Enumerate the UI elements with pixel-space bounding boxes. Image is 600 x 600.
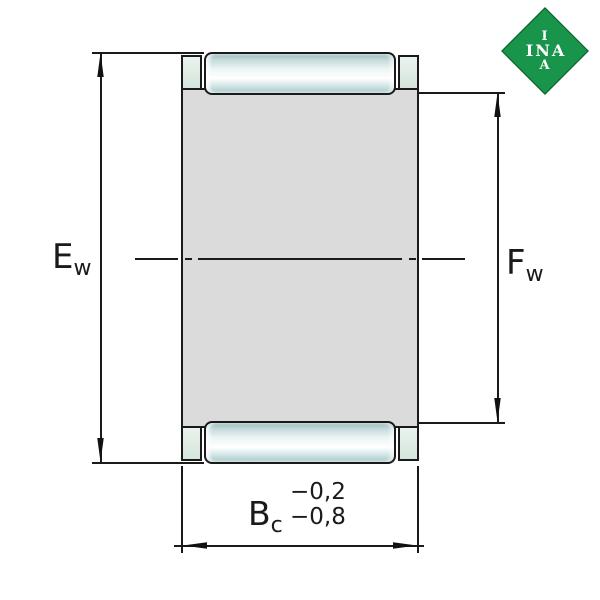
fw-dimension-line — [497, 93, 499, 422]
ew-label-main: E — [52, 237, 73, 277]
arrow-down-icon — [493, 398, 502, 422]
arrow-up-icon — [96, 53, 105, 77]
fw-label: Fw — [506, 246, 544, 286]
bc-dimension-line — [174, 545, 424, 547]
drawing-canvas: Ew Fw Bc −0,2 −0,8 I INA A — [0, 0, 600, 600]
ew-dimension-line — [100, 53, 102, 462]
needle-roller-bottom — [204, 421, 396, 464]
bc-tolerance: −0,2 −0,8 — [290, 480, 346, 530]
cage-tab-top-left — [181, 55, 202, 90]
bc-extension-line-right — [417, 466, 419, 553]
bc-tolerance-upper: −0,2 — [290, 480, 346, 505]
arrow-up-icon — [493, 93, 502, 117]
fw-extension-line-top — [419, 92, 505, 94]
center-line — [422, 258, 465, 260]
bc-label-main: B — [248, 494, 271, 533]
ina-logo-line2: INA — [524, 43, 567, 59]
ew-extension-line-top — [92, 52, 204, 54]
ina-logo-text: I INA A — [515, 21, 575, 81]
fw-label-main: F — [506, 243, 526, 283]
ina-logo-line3: A — [539, 59, 550, 72]
center-line — [185, 258, 192, 260]
center-line — [198, 258, 402, 260]
arrow-down-icon — [96, 438, 105, 462]
center-line — [409, 258, 416, 260]
bc-label: Bc — [248, 497, 283, 537]
ew-label-sub: w — [73, 256, 91, 281]
bc-label-sub: c — [271, 513, 283, 538]
ew-label: Ew — [52, 240, 91, 280]
bc-tolerance-lower: −0,8 — [290, 505, 346, 530]
fw-label-sub: w — [526, 262, 544, 287]
ew-extension-line-bottom — [92, 462, 204, 464]
bc-extension-line-left — [181, 466, 183, 553]
cage-tab-bottom-right — [398, 426, 419, 461]
center-line — [135, 258, 178, 260]
arrow-left-icon — [183, 541, 207, 550]
cage-tab-top-right — [398, 55, 419, 90]
ina-logo: I INA A — [501, 7, 589, 95]
needle-roller-top — [204, 52, 396, 95]
fw-extension-line-bottom — [419, 422, 505, 424]
arrow-right-icon — [393, 541, 417, 550]
cage-tab-bottom-left — [181, 426, 202, 461]
